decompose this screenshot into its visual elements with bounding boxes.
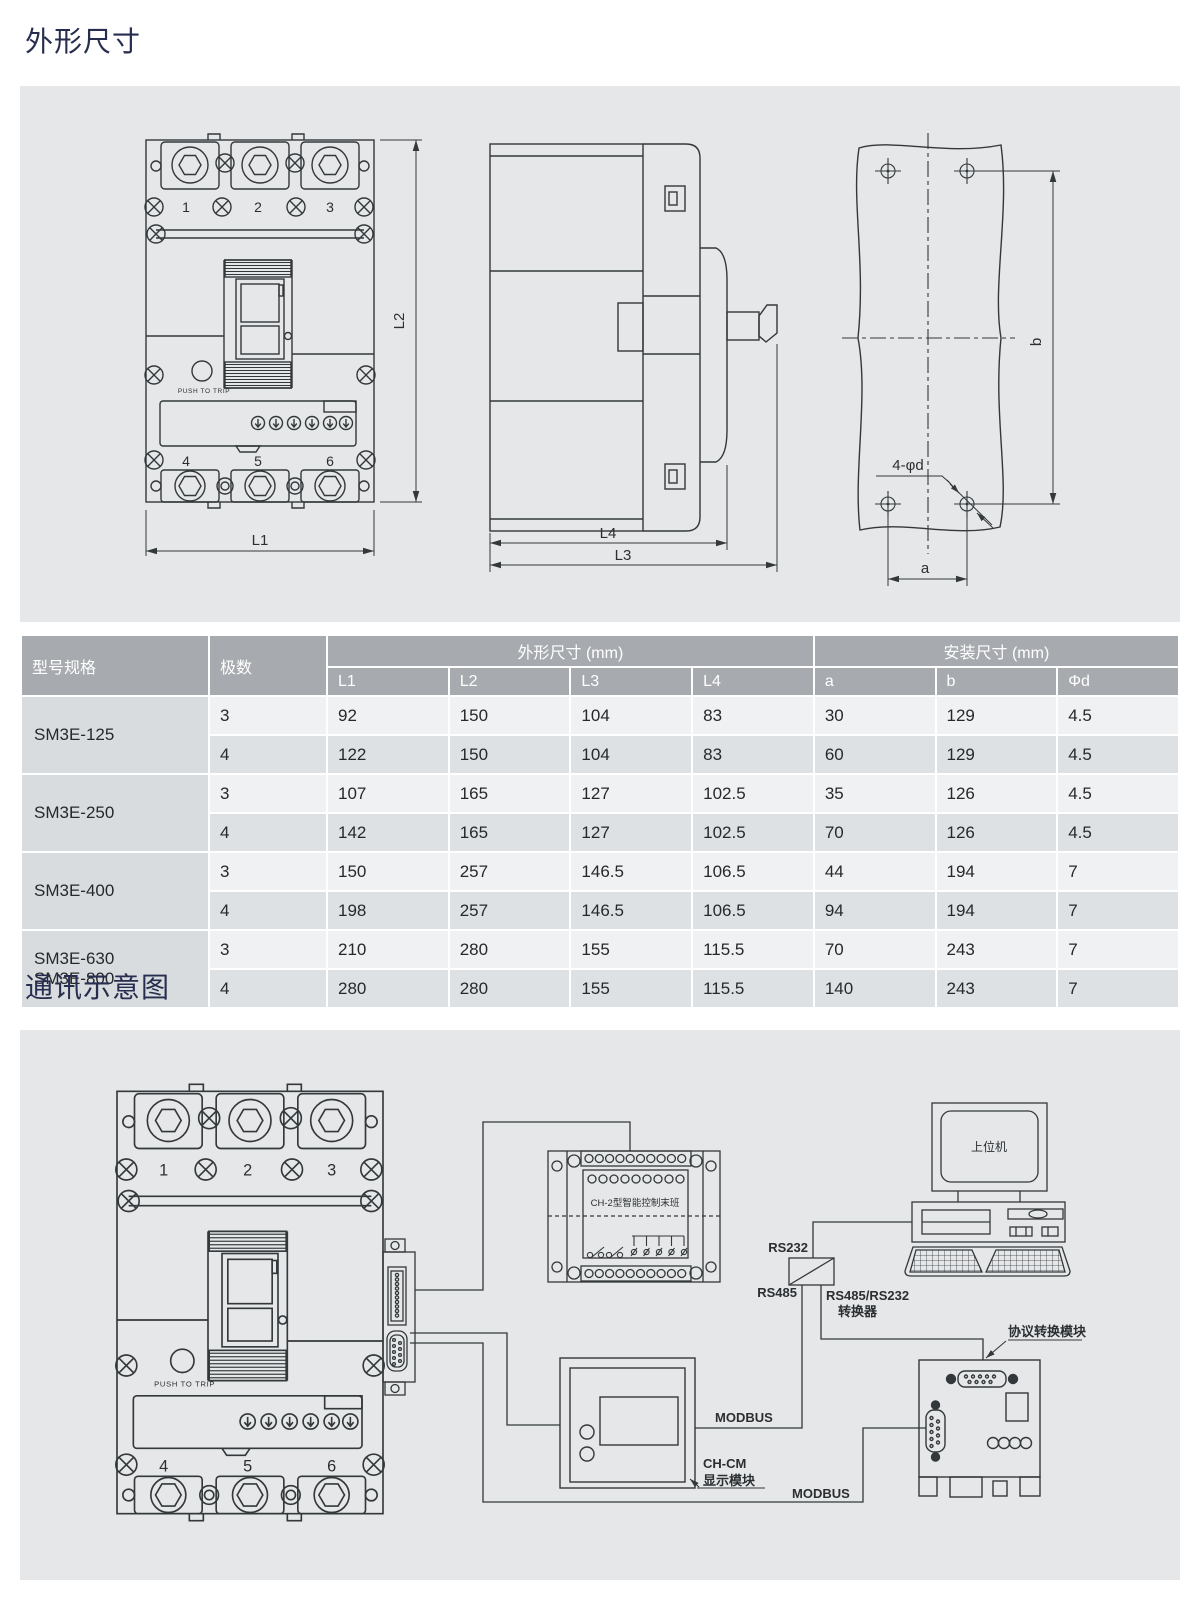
- dimension-cell: 102.5: [693, 814, 813, 851]
- col-header-l2: L2: [450, 668, 570, 695]
- dimension-cell: 146.5: [571, 853, 691, 890]
- dimension-cell: 7: [1058, 931, 1178, 968]
- table-row: SM3E-2503107165127102.5351264.5: [22, 775, 1178, 812]
- dimensions-drawing-panel: L1 L2 L4 L3 b a 4-φd: [20, 86, 1180, 622]
- ch2-top-terminals: [585, 1155, 686, 1163]
- dimension-cell: 150: [450, 736, 570, 773]
- col-header-l3: L3: [571, 668, 691, 695]
- section-title-dimensions: 外形尺寸: [25, 20, 141, 60]
- db9-connector-left: [926, 1401, 945, 1461]
- dimensions-table: 型号规格 极数 外形尺寸 (mm) 安装尺寸 (mm) L1 L2 L3 L4 …: [20, 634, 1180, 1009]
- led-indicators: [988, 1438, 1032, 1449]
- dimension-cell: 194: [937, 853, 1057, 890]
- poles-cell: 3: [210, 775, 326, 812]
- mounting-holes: [842, 133, 1015, 554]
- wire-breaker-to-display: [410, 1333, 560, 1425]
- dimension-cell: 4.5: [1058, 697, 1178, 734]
- dimension-cell: 107: [328, 775, 448, 812]
- dimension-cell: 115.5: [693, 931, 813, 968]
- poles-cell: 4: [210, 814, 326, 851]
- rs232-label: RS232: [768, 1240, 808, 1255]
- table-row: SM3E-4003150257146.5106.5441947: [22, 853, 1178, 890]
- keyboard: [905, 1247, 1070, 1276]
- communication-diagram: CH-2型智能控制末班 上位机 RS232 RS485 RS485/RS232 …: [20, 1030, 1180, 1580]
- col-header-b: b: [937, 668, 1057, 695]
- db9-connector-top: [947, 1371, 1018, 1387]
- dimension-cell: 257: [450, 892, 570, 929]
- dimension-cell: 155: [571, 970, 691, 1007]
- col-header-model: 型号规格: [22, 636, 208, 695]
- table-header-group-row: 型号规格 极数 外形尺寸 (mm) 安装尺寸 (mm): [22, 636, 1178, 666]
- ch2-inner-terminals: [588, 1175, 684, 1183]
- model-cell: SM3E-250: [22, 775, 208, 851]
- dim-label-l4: L4: [600, 525, 617, 542]
- dim-label-b: b: [1028, 338, 1045, 346]
- dimension-cell: 83: [693, 697, 813, 734]
- dimensions-drawing: L1 L2 L4 L3 b a 4-φd: [20, 86, 1180, 622]
- dimension-cell: 140: [815, 970, 935, 1007]
- dimension-cell: 35: [815, 775, 935, 812]
- dim-label-l3: L3: [615, 547, 632, 564]
- communication-diagram-panel: CH-2型智能控制末班 上位机 RS232 RS485 RS485/RS232 …: [20, 1030, 1180, 1580]
- modbus-label-bottom: MODBUS: [792, 1486, 850, 1501]
- rs485-rs232-converter: [789, 1258, 834, 1285]
- dimension-cell: 94: [815, 892, 935, 929]
- protocol-module-label: 协议转换模块: [1008, 1324, 1087, 1339]
- poles-cell: 3: [210, 931, 326, 968]
- dimension-cell: 30: [815, 697, 935, 734]
- ch2-bottom-terminals: [585, 1270, 686, 1278]
- dim-label-l2: L2: [391, 313, 408, 330]
- table-row: SM3E-12539215010483301294.5: [22, 697, 1178, 734]
- chcm-label-line2: 显示模块: [703, 1473, 756, 1488]
- dimension-cell: 44: [815, 853, 935, 890]
- dimension-cell: 280: [450, 931, 570, 968]
- converter-label-line2: 转换器: [838, 1304, 878, 1319]
- poles-cell: 3: [210, 697, 326, 734]
- dimension-cell: 7: [1058, 853, 1178, 890]
- table-row: SM3E-630SM3E-8003210280155115.5702437: [22, 931, 1178, 968]
- converter-label-line1: RS485/RS232: [826, 1288, 909, 1303]
- dimension-cell: 102.5: [693, 775, 813, 812]
- dim-label-l1: L1: [252, 532, 269, 549]
- col-header-phid: Φd: [1058, 668, 1178, 695]
- display-button-2: [580, 1447, 594, 1461]
- col-header-l4: L4: [693, 668, 813, 695]
- dimension-cell: 92: [328, 697, 448, 734]
- dimension-cell: 127: [571, 814, 691, 851]
- wiring: [410, 1122, 983, 1502]
- dimension-cell: 126: [937, 814, 1057, 851]
- poles-cell: 4: [210, 892, 326, 929]
- datasheet-page: { "page": { "bg": "#ffffff", "panel_bg":…: [0, 0, 1200, 1601]
- host-computer-label: 上位机: [971, 1139, 1007, 1154]
- col-header-l1: L1: [328, 668, 448, 695]
- dimension-cell: 198: [328, 892, 448, 929]
- dimension-cell: 83: [693, 736, 813, 773]
- dimension-cell: 150: [450, 697, 570, 734]
- dimension-cell: 243: [937, 970, 1057, 1007]
- poles-cell: 4: [210, 736, 326, 773]
- col-header-a: a: [815, 668, 935, 695]
- dimension-cell: 165: [450, 814, 570, 851]
- dimension-cell: 150: [328, 853, 448, 890]
- dimension-cell: 127: [571, 775, 691, 812]
- dim-label-a: a: [921, 560, 930, 577]
- side-view-dimensions: [490, 344, 777, 572]
- dimension-cell: 146.5: [571, 892, 691, 929]
- pin-strip: [395, 1273, 398, 1317]
- dimension-cell: 106.5: [693, 853, 813, 890]
- dimension-cell: 129: [937, 736, 1057, 773]
- dimension-cell: 70: [815, 814, 935, 851]
- dimension-cell: 7: [1058, 892, 1178, 929]
- dimension-cell: 194: [937, 892, 1057, 929]
- mounting-dimensions: [876, 171, 1060, 586]
- dimension-cell: 70: [815, 931, 935, 968]
- dimension-cell: 122: [328, 736, 448, 773]
- db9-connector-breaker: [387, 1331, 407, 1371]
- dimension-cell: 4.5: [1058, 814, 1178, 851]
- ch2-module-label: CH-2型智能控制末班: [591, 1197, 680, 1209]
- protocol-module-leader: [986, 1340, 1082, 1358]
- rs485-label: RS485: [757, 1285, 797, 1300]
- dimension-cell: 60: [815, 736, 935, 773]
- dimension-cell: 126: [937, 775, 1057, 812]
- dimension-cell: 115.5: [693, 970, 813, 1007]
- col-group-mount: 安装尺寸 (mm): [815, 636, 1178, 666]
- wire-rs485-display: [695, 1285, 802, 1428]
- model-cell: SM3E-400: [22, 853, 208, 929]
- chip: [1006, 1393, 1028, 1421]
- wire-modbus-bottom: [410, 1343, 926, 1502]
- display-screen: [600, 1397, 678, 1445]
- chcm-label-line1: CH-CM: [703, 1456, 746, 1471]
- holes-label: 4-φd: [892, 457, 923, 474]
- dimension-cell: 257: [450, 853, 570, 890]
- breaker-side-view: [490, 144, 777, 531]
- dimension-cell: 142: [328, 814, 448, 851]
- model-cell: SM3E-125: [22, 697, 208, 773]
- dimension-cell: 7: [1058, 970, 1178, 1007]
- dimension-cell: 104: [571, 697, 691, 734]
- dimension-cell: 165: [450, 775, 570, 812]
- dimension-cell: 4.5: [1058, 775, 1178, 812]
- poles-cell: 3: [210, 853, 326, 890]
- display-button-1: [580, 1425, 594, 1439]
- dimension-cell: 280: [328, 970, 448, 1007]
- ch2-module: [548, 1151, 720, 1282]
- dimension-cell: 104: [571, 736, 691, 773]
- host-computer: [905, 1103, 1070, 1276]
- display-module: [560, 1358, 695, 1488]
- protocol-module: [919, 1360, 1040, 1497]
- col-group-outline: 外形尺寸 (mm): [328, 636, 813, 666]
- dimension-cell: 280: [450, 970, 570, 1007]
- dimension-cell: 129: [937, 697, 1057, 734]
- wire-rs232: [813, 1222, 912, 1258]
- dimension-cell: 106.5: [693, 892, 813, 929]
- ch2-switch-symbols: [587, 1236, 687, 1258]
- poles-cell: 4: [210, 970, 326, 1007]
- dimension-cell: 210: [328, 931, 448, 968]
- modbus-label-display: MODBUS: [715, 1410, 773, 1425]
- col-header-poles: 极数: [210, 636, 326, 695]
- dimension-cell: 243: [937, 931, 1057, 968]
- dimension-cell: 4.5: [1058, 736, 1178, 773]
- dimension-cell: 155: [571, 931, 691, 968]
- breaker-comm-connector: [383, 1239, 415, 1395]
- section-title-communication: 通讯示意图: [25, 966, 170, 1006]
